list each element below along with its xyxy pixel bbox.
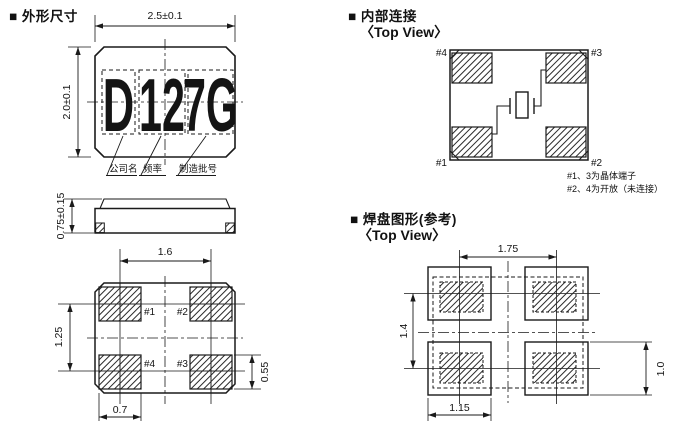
bottom-pad-2-label: #2 xyxy=(177,307,189,318)
package-side-view-drawing: 0.75±0.15 xyxy=(55,193,235,240)
package-lid xyxy=(100,199,230,209)
device-pad-projection-top-left xyxy=(440,282,483,312)
side-terminal-right xyxy=(226,223,235,233)
diagram-canvas: 2.5±0.1 2.0±0.1 D 12 7G 公司名 频率 制造批号 0.75… xyxy=(0,0,675,429)
internal-pad-4 xyxy=(452,53,492,83)
bottom-pad-2 xyxy=(190,287,232,321)
crystal-electrode-plates xyxy=(510,98,534,114)
bottom-pad-3-label: #3 xyxy=(177,359,189,370)
crystal-symbol xyxy=(516,92,528,118)
bottom-pad-3 xyxy=(190,355,232,389)
internal-pad-2 xyxy=(546,127,586,157)
device-pad-projection-bottom-left xyxy=(440,353,483,383)
pad-pitch-y-dimension-text: 1.25 xyxy=(53,327,65,348)
internal-pad-1-label: #1 xyxy=(436,158,448,169)
land-pattern-drawing: 1.75 1.4 1.0 1.15 xyxy=(398,243,667,421)
package-top-view-drawing: 2.5±0.1 2.0±0.1 D 12 7G 公司名 频率 制造批号 xyxy=(61,10,243,176)
internal-pad-3 xyxy=(546,53,586,83)
internal-pad-3-label: #3 xyxy=(591,48,603,59)
land-pitch-y-dimension-text: 1.4 xyxy=(398,324,410,339)
label-company-name: 公司名 xyxy=(109,163,138,175)
bottom-pad-1-label: #1 xyxy=(144,307,156,318)
pad-height-dimension-text: 0.55 xyxy=(259,362,271,383)
device-pad-projection-bottom-right xyxy=(533,353,576,383)
internal-pad-2-label: #2 xyxy=(591,158,603,169)
marking-frequency-code: 12 xyxy=(139,63,185,147)
label-frequency: 频率 xyxy=(143,163,163,175)
side-terminal-left xyxy=(96,223,105,233)
marking-company-code: D xyxy=(103,64,134,147)
internal-connection-drawing: #4 #3 #1 #2 xyxy=(436,48,603,169)
pad-height-extension-lines xyxy=(234,355,261,389)
land-pad-height-dimension-text: 1.0 xyxy=(655,362,667,377)
pad-width-dimension-text: 0.7 xyxy=(113,404,128,416)
bottom-pad-4 xyxy=(99,355,141,389)
width-dimension-text: 2.5±0.1 xyxy=(148,10,183,22)
crystal-wire-to-pad1 xyxy=(492,106,510,134)
thickness-dimension-text: 0.75±0.15 xyxy=(55,193,67,240)
height-dimension-text: 2.0±0.1 xyxy=(61,84,73,119)
internal-pad-1 xyxy=(452,127,492,157)
marking-lot-code: 7G xyxy=(183,63,238,147)
crystal-wire-to-pad3 xyxy=(534,70,546,106)
device-pad-projection-top-right xyxy=(533,282,576,312)
package-bottom-view-drawing: 1.6 1.25 #1 #2 #4 #3 0.55 0.7 xyxy=(53,246,271,421)
land-pad-width-dimension-text: 1.15 xyxy=(449,402,470,414)
label-lot-number: 制造批号 xyxy=(179,163,217,175)
bottom-pad-1 xyxy=(99,287,141,321)
package-base xyxy=(95,209,235,234)
pad-pitch-x-dimension-text: 1.6 xyxy=(158,246,173,258)
internal-pad-4-label: #4 xyxy=(436,48,448,59)
bottom-pad-4-label: #4 xyxy=(144,359,156,370)
land-pitch-x-dimension-text: 1.75 xyxy=(498,243,519,255)
datasheet-page: ■ 外形尺寸 ■ 内部连接 〈Top View〉 ■ 焊盘图形(参考) 〈Top… xyxy=(0,0,675,429)
